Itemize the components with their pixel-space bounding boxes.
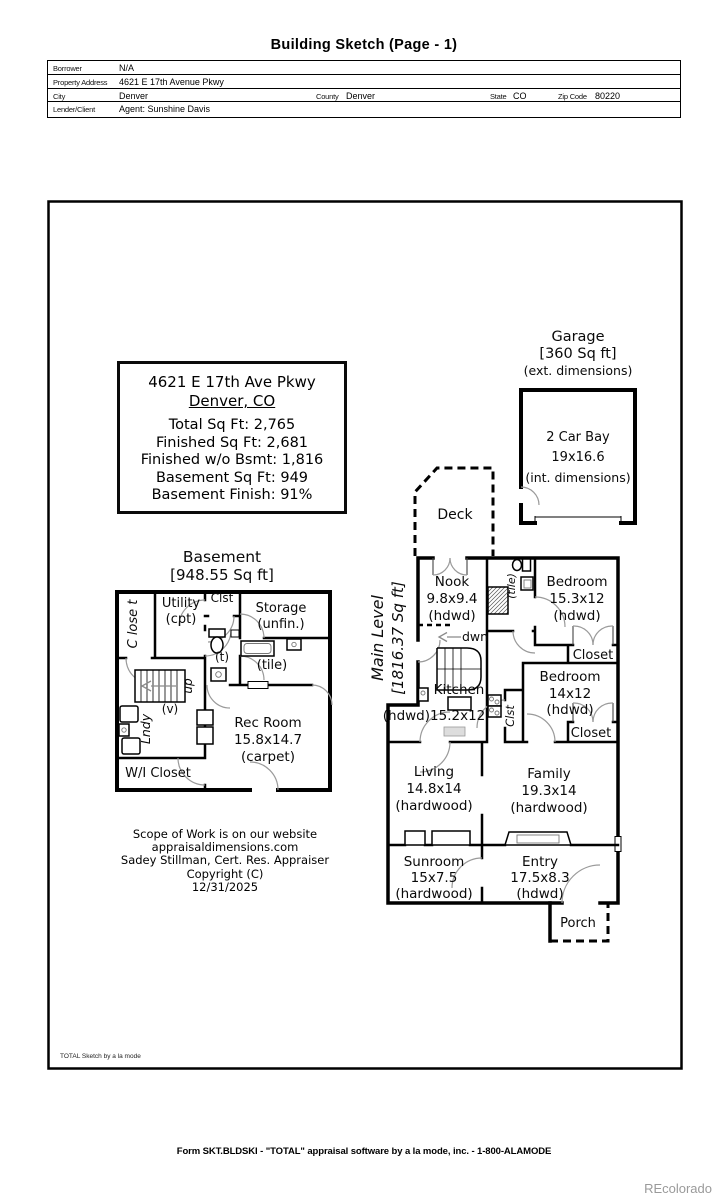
dwn-arrow-icon bbox=[439, 633, 461, 642]
up-label: up bbox=[181, 678, 195, 694]
borrower-value: N/A bbox=[119, 63, 134, 73]
form-row-city: City Denver County Denver State CO Zip C… bbox=[48, 89, 680, 103]
main-toilet-icon bbox=[513, 560, 522, 571]
living-label: Living bbox=[414, 764, 454, 780]
main-level-title: Main Level bbox=[368, 595, 387, 681]
summary-stats: Total Sq Ft: 2,765 Finished Sq Ft: 2,681… bbox=[120, 417, 344, 505]
city-label: City bbox=[53, 92, 65, 101]
main-level-area: [1816.37 Sq ft] bbox=[389, 581, 407, 695]
main-tile-label: (tile) bbox=[505, 573, 518, 599]
state-value: CO bbox=[513, 91, 527, 101]
borrower-label: Borrower bbox=[53, 64, 82, 73]
basement-plan: Basement [948.55 Sq ft] bbox=[117, 548, 332, 790]
summary-finished-wo-bsmt: Finished w/o Bsmt: 1,816 bbox=[120, 452, 344, 470]
lender-label: Lender/Client bbox=[53, 105, 95, 114]
sketch-canvas: Garage [360 Sq ft] (ext. dimensions) 2 C… bbox=[47, 200, 683, 1070]
header-form: Borrower N/A Property Address 4621 E 17t… bbox=[47, 60, 681, 118]
living-floor: (hardwood) bbox=[395, 798, 472, 814]
summary-address: 4621 E 17th Ave Pkwy bbox=[120, 373, 344, 391]
bedroom2-floor: (hdwd) bbox=[546, 702, 593, 718]
basement-area: [948.55 Sq ft] bbox=[170, 566, 274, 584]
bedroom1-label: Bedroom bbox=[546, 574, 607, 590]
dwn-label: dwn bbox=[462, 629, 488, 644]
sunroom-entry-fixtures bbox=[405, 831, 571, 845]
garage-bay-dims: 19x16.6 bbox=[551, 450, 604, 465]
form-row-address: Property Address 4621 E 17th Avenue Pkwy bbox=[48, 75, 680, 89]
sunroom-floor: (hardwood) bbox=[395, 886, 472, 902]
county-value: Denver bbox=[346, 91, 375, 101]
utility-floor: (cpt) bbox=[166, 612, 197, 627]
rec-room-dims: 15.8x14.7 bbox=[234, 732, 302, 748]
recolorado-watermark: REcolorado bbox=[644, 1181, 712, 1196]
bedroom2-dims: 14x12 bbox=[549, 686, 591, 702]
sunroom-label: Sunroom bbox=[404, 854, 465, 870]
sunroom-dims: 15x7.5 bbox=[411, 870, 458, 886]
kitchen-dims: (hdwd)15.2x12 bbox=[383, 708, 486, 724]
county-label: County bbox=[316, 92, 339, 101]
nook-floor: (hdwd) bbox=[428, 608, 475, 624]
zip-label: Zip Code bbox=[558, 92, 587, 101]
bedroom1-floor: (hdwd) bbox=[553, 608, 600, 624]
bay-window-icon bbox=[405, 831, 425, 845]
form-footer: Form SKT.BLDSKI - "TOTAL" appraisal soft… bbox=[0, 1146, 728, 1157]
wi-closet-label: W/I Closet bbox=[125, 766, 191, 781]
garage-wall-corner bbox=[521, 505, 535, 523]
utility-label: Utility bbox=[162, 596, 201, 611]
main-clst-label: Clst bbox=[503, 705, 517, 727]
laundry-label: Lndy bbox=[138, 713, 153, 744]
form-row-borrower: Borrower N/A bbox=[48, 61, 680, 75]
entry-dims: 17.5x8.3 bbox=[510, 870, 570, 886]
laundry-sink-icon bbox=[119, 724, 129, 736]
kitchen-label: Kitchen bbox=[434, 682, 485, 698]
basement-title: Basement bbox=[183, 548, 261, 566]
basement-closet-label: C lose t bbox=[126, 599, 141, 649]
deck-label: Deck bbox=[437, 507, 473, 523]
entry-label: Entry bbox=[522, 854, 558, 870]
storage-label: Storage bbox=[256, 601, 307, 616]
scope-line-5: 12/31/2025 bbox=[115, 881, 335, 894]
nook-dims: 9.8x9.4 bbox=[427, 591, 478, 607]
building-sketch-page: Building Sketch (Page - 1) Borrower N/A … bbox=[0, 0, 728, 1200]
page-title: Building Sketch (Page - 1) bbox=[0, 37, 728, 53]
garage-title: Garage bbox=[551, 329, 604, 345]
rec-room-floor: (carpet) bbox=[241, 749, 295, 765]
tile-sink-icon bbox=[287, 639, 301, 650]
summary-total: Total Sq Ft: 2,765 bbox=[120, 417, 344, 435]
main-level-plan: Main Level [1816.37 Sq ft] Deck bbox=[368, 468, 621, 941]
lender-value: Agent: Sunshine Davis bbox=[119, 104, 210, 114]
bsmt-clst-label: Clst bbox=[211, 591, 234, 605]
toilet-room-label: (t) bbox=[215, 650, 229, 664]
family-floor: (hardwood) bbox=[510, 800, 587, 816]
vanity-label: (v) bbox=[162, 702, 178, 716]
summary-basement-finish: Basement Finish: 91% bbox=[120, 487, 344, 505]
basement-sink-icon bbox=[211, 668, 226, 681]
property-address-value: 4621 E 17th Avenue Pkwy bbox=[119, 77, 224, 87]
garage-area: [360 Sq ft] bbox=[539, 346, 616, 362]
property-summary-box: 4621 E 17th Ave Pkwy Denver, CO Total Sq… bbox=[117, 361, 347, 514]
family-label: Family bbox=[527, 766, 570, 782]
living-dims: 14.8x14 bbox=[406, 781, 461, 797]
property-address-label: Property Address bbox=[53, 78, 107, 87]
state-label: State bbox=[490, 92, 507, 101]
family-dims: 19.3x14 bbox=[521, 783, 576, 799]
rec-room-label: Rec Room bbox=[234, 715, 301, 731]
bay-window-icon bbox=[432, 831, 470, 845]
scope-line-4: Copyright (C) bbox=[115, 868, 335, 881]
summary-basement-sqft: Basement Sq Ft: 949 bbox=[120, 470, 344, 488]
closet2-label: Closet bbox=[571, 726, 612, 741]
toilet-tank-icon bbox=[209, 629, 225, 637]
bsmt-tile-label: (tile) bbox=[257, 658, 287, 673]
furnace-icon bbox=[197, 710, 213, 725]
kitchen-counter-icon bbox=[444, 727, 465, 736]
form-row-lender: Lender/Client Agent: Sunshine Davis bbox=[48, 102, 680, 116]
storage-note: (unfin.) bbox=[257, 617, 304, 632]
bedroom2-label: Bedroom bbox=[539, 669, 600, 685]
washer-icon bbox=[120, 706, 138, 722]
bedroom1-dims: 15.3x12 bbox=[549, 591, 604, 607]
garage-plan: Garage [360 Sq ft] (ext. dimensions) 2 C… bbox=[521, 329, 635, 523]
zip-value: 80220 bbox=[595, 91, 620, 101]
garage-bay-label: 2 Car Bay bbox=[546, 430, 610, 445]
closet1-label: Closet bbox=[573, 648, 614, 663]
garage-man-door-arc bbox=[521, 487, 539, 505]
garage-door bbox=[535, 516, 621, 523]
entry-floor: (hdwd) bbox=[516, 886, 563, 902]
tp-holder-icon bbox=[231, 630, 239, 637]
scope-of-work: Scope of Work is on our website appraisa… bbox=[115, 828, 335, 894]
scope-line-3: Sadey Stillman, Cert. Res. Appraiser bbox=[115, 854, 335, 867]
kitchen-sink-icon bbox=[419, 688, 429, 701]
sketch-credit: TOTAL Sketch by a la mode bbox=[60, 1053, 141, 1060]
garage-int-note: (int. dimensions) bbox=[525, 470, 630, 485]
water-heater-icon bbox=[197, 727, 213, 744]
basement-window bbox=[248, 682, 268, 689]
city-value: Denver bbox=[119, 91, 148, 101]
porch-label: Porch bbox=[560, 916, 596, 931]
garage-ext-note: (ext. dimensions) bbox=[524, 363, 633, 378]
basement-stairs bbox=[135, 670, 185, 702]
nook-label: Nook bbox=[435, 574, 470, 590]
summary-finished: Finished Sq Ft: 2,681 bbox=[120, 435, 344, 453]
summary-city-state: Denver, CO bbox=[120, 392, 344, 410]
